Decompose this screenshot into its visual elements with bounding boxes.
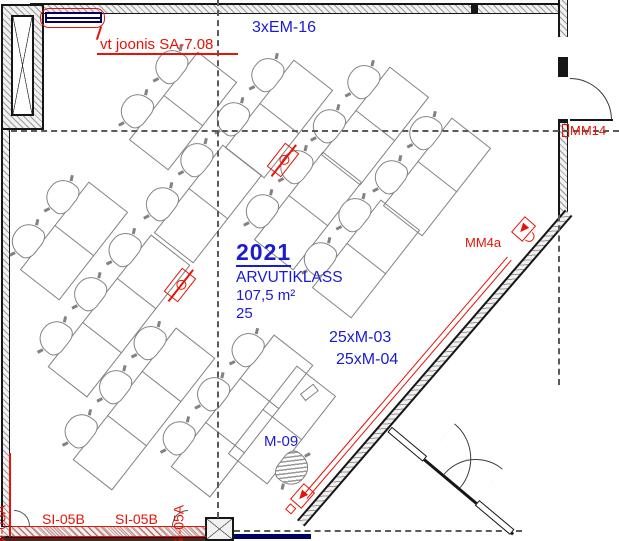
- vent-callout-label: vt joonis SA-7.08: [100, 37, 213, 53]
- vent-callout-underline: [97, 53, 238, 55]
- mm4a-label: MM4a: [465, 236, 501, 250]
- room-capacity: 25: [236, 306, 343, 322]
- right-wall-top: [558, 0, 568, 37]
- door-leaf-mm14: [570, 119, 613, 121]
- corridor-door-wall: [390, 429, 514, 533]
- room-name: ARVUTIKLASS: [236, 270, 343, 286]
- si05a-mid-label: SI-05A: [171, 505, 186, 541]
- wall-speaker-junction: [285, 503, 296, 514]
- top-wall: [30, 3, 558, 14]
- shaft-x-brace: [11, 15, 34, 116]
- room-tag: 2021 ARVUTIKLASS 107,5 m² 25: [236, 240, 343, 322]
- gridline-horizontal: [11, 130, 619, 132]
- room-number: 2021: [236, 240, 291, 267]
- floor-plan: vt joonis SA-7.08 MM14 MM4a SI-05A SI-05…: [0, 0, 619, 541]
- si05a-left-label: SI-05A: [0, 505, 8, 541]
- gridline-vertical-right: [558, 215, 560, 385]
- si05b-right-label: SI-05B: [115, 512, 158, 527]
- gridline-vertical-left: [217, 0, 219, 518]
- duct-arc-left: [14, 510, 30, 526]
- beam-bottom: [234, 532, 311, 539]
- m04-label: 25xM-04: [336, 352, 398, 369]
- riser-line-left: [9, 453, 11, 537]
- door-swing-mm14: [570, 78, 612, 120]
- vent-callout-bubble: [40, 8, 105, 28]
- door-leaf-left: [387, 427, 427, 462]
- em16-label: 3xEM-16: [252, 20, 316, 37]
- room-area: 107,5 m²: [236, 288, 343, 304]
- m03-label: 25xM-03: [329, 330, 391, 347]
- top-wall-joint: [471, 3, 478, 14]
- mm14-device-box: [562, 124, 569, 137]
- m09-label: M-09: [264, 434, 298, 450]
- si05b-left-label: SI-05B: [42, 512, 85, 527]
- column: [205, 517, 234, 541]
- door-post: [558, 57, 568, 77]
- mm14-label: MM14: [570, 124, 606, 138]
